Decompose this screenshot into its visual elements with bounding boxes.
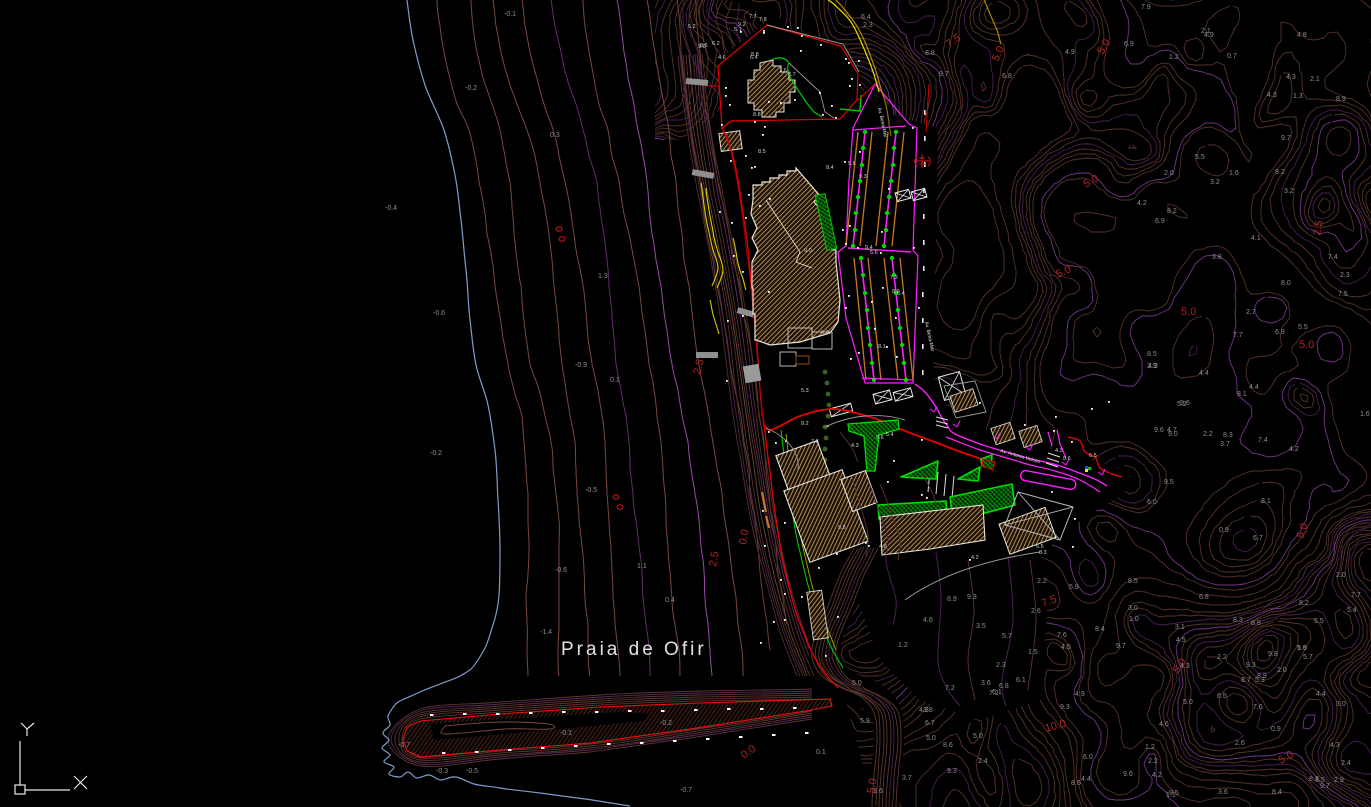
svg-text:0.1: 0.1 xyxy=(610,377,620,384)
svg-text:6.4: 6.4 xyxy=(861,14,871,21)
svg-text:5.4: 5.4 xyxy=(1347,607,1357,614)
svg-text:8.2: 8.2 xyxy=(1299,600,1309,607)
svg-text:9.3: 9.3 xyxy=(967,594,977,601)
svg-text:9.2: 9.2 xyxy=(801,421,809,427)
svg-text:-0.4: -0.4 xyxy=(385,205,397,212)
svg-text:-0.5: -0.5 xyxy=(466,768,478,775)
svg-text:3.1: 3.1 xyxy=(1175,624,1185,631)
svg-text:9.0: 9.0 xyxy=(804,248,812,254)
svg-text:9.2: 9.2 xyxy=(1275,169,1285,176)
svg-text:4.3: 4.3 xyxy=(1330,742,1340,749)
svg-text:7.7: 7.7 xyxy=(749,14,757,20)
svg-text:2.0: 2.0 xyxy=(1277,667,1287,674)
svg-text:7.3: 7.3 xyxy=(890,275,898,281)
svg-text:3.8: 3.8 xyxy=(1212,254,1222,261)
svg-text:6.4: 6.4 xyxy=(897,291,905,297)
svg-text:8.1: 8.1 xyxy=(1237,391,1247,398)
svg-text:1.5: 1.5 xyxy=(1028,649,1038,656)
svg-text:-0.2: -0.2 xyxy=(465,85,477,92)
svg-text:-0.6: -0.6 xyxy=(433,310,445,317)
svg-text:5.7: 5.7 xyxy=(1303,654,1313,661)
svg-text:9.5: 9.5 xyxy=(838,525,846,531)
svg-text:2.3: 2.3 xyxy=(996,662,1006,669)
svg-text:8.4: 8.4 xyxy=(826,165,834,171)
svg-text:4.4: 4.4 xyxy=(1081,776,1091,783)
svg-text:7.6: 7.6 xyxy=(779,68,787,74)
svg-text:6.8: 6.8 xyxy=(1199,594,1209,601)
svg-text:5.0: 5.0 xyxy=(1183,699,1193,706)
svg-text:8.5: 8.5 xyxy=(758,149,766,155)
svg-text:6.5: 6.5 xyxy=(1089,453,1097,459)
svg-text:5.2: 5.2 xyxy=(688,24,696,30)
svg-text:5.9: 5.9 xyxy=(860,718,870,725)
svg-text:3.7: 3.7 xyxy=(902,775,912,782)
svg-text:2.2: 2.2 xyxy=(1037,578,1047,585)
svg-text:1.3: 1.3 xyxy=(1293,93,1303,100)
svg-text:9.6: 9.6 xyxy=(1123,771,1133,778)
svg-text:0.4: 0.4 xyxy=(665,597,675,604)
svg-text:3.8: 3.8 xyxy=(923,707,933,714)
svg-text:2.7: 2.7 xyxy=(1246,309,1256,316)
svg-text:7.4: 7.4 xyxy=(1328,254,1338,261)
svg-text:5.5: 5.5 xyxy=(1298,324,1308,331)
svg-text:8.4: 8.4 xyxy=(1095,626,1105,633)
svg-text:5.0: 5.0 xyxy=(1181,306,1196,318)
svg-text:1.2: 1.2 xyxy=(898,642,908,649)
svg-text:2.4: 2.4 xyxy=(978,758,988,765)
svg-text:4.3: 4.3 xyxy=(1267,92,1277,99)
svg-text:7.6: 7.6 xyxy=(1253,704,1263,711)
svg-text:9.7: 9.7 xyxy=(1281,135,1291,142)
svg-text:4.6: 4.6 xyxy=(923,617,933,624)
svg-text:0.9: 0.9 xyxy=(1271,726,1281,733)
svg-text:4.3: 4.3 xyxy=(851,443,859,449)
svg-text:8.7: 8.7 xyxy=(788,72,796,78)
svg-text:4.5: 4.5 xyxy=(1176,637,1186,644)
svg-text:0.1: 0.1 xyxy=(816,749,826,756)
svg-text:4.3: 4.3 xyxy=(1286,74,1296,81)
svg-text:5.0: 5.0 xyxy=(852,680,862,687)
svg-text:7.2: 7.2 xyxy=(945,685,955,692)
svg-text:3.7: 3.7 xyxy=(1220,441,1230,448)
svg-text:9.7: 9.7 xyxy=(1116,643,1126,650)
svg-text:9.8: 9.8 xyxy=(1268,651,1278,658)
svg-text:-0.1: -0.1 xyxy=(560,730,572,737)
svg-text:4.4: 4.4 xyxy=(1199,370,1209,377)
svg-text:2.9: 2.9 xyxy=(1334,777,1344,784)
svg-text:4.5: 4.5 xyxy=(1061,644,1071,651)
svg-text:3.2: 3.2 xyxy=(1210,179,1220,186)
svg-text:-0.3: -0.3 xyxy=(436,768,448,775)
svg-text:3.5: 3.5 xyxy=(976,623,986,630)
svg-text:8.6: 8.6 xyxy=(1063,456,1071,462)
svg-text:5.5: 5.5 xyxy=(1195,154,1205,161)
svg-text:-0.7: -0.7 xyxy=(398,742,410,749)
svg-text:2.0: 2.0 xyxy=(1336,572,1346,579)
svg-text:8.2: 8.2 xyxy=(1167,208,1177,215)
svg-text:6.9: 6.9 xyxy=(1275,329,1285,336)
svg-text:2.2: 2.2 xyxy=(1148,758,1158,765)
svg-text:5.4: 5.4 xyxy=(886,432,894,438)
svg-text:9.3: 9.3 xyxy=(1060,704,1070,711)
svg-text:2.4: 2.4 xyxy=(1341,760,1351,767)
svg-text:8.9: 8.9 xyxy=(947,596,957,603)
svg-text:9.0: 9.0 xyxy=(1168,431,1178,438)
svg-text:-0.2: -0.2 xyxy=(660,720,672,727)
svg-text:9.6: 9.6 xyxy=(1180,400,1190,407)
svg-text:3.2: 3.2 xyxy=(1284,188,1294,195)
svg-text:0.9: 0.9 xyxy=(1219,527,1229,534)
svg-text:4.3: 4.3 xyxy=(1055,448,1063,454)
svg-text:1.1: 1.1 xyxy=(637,563,647,570)
svg-text:5.0: 5.0 xyxy=(973,733,983,740)
svg-text:1.6: 1.6 xyxy=(1229,170,1239,177)
svg-text:8.6: 8.6 xyxy=(943,742,953,749)
svg-text:2.1: 2.1 xyxy=(1201,28,1211,35)
svg-text:5.6: 5.6 xyxy=(848,161,856,167)
svg-text:8.3: 8.3 xyxy=(1223,432,1233,439)
svg-text:7.7: 7.7 xyxy=(1233,332,1243,339)
svg-text:2.3: 2.3 xyxy=(1340,272,1350,279)
svg-text:7.6: 7.6 xyxy=(1057,632,1067,639)
svg-text:6.0: 6.0 xyxy=(1083,754,1093,761)
svg-text:6.8: 6.8 xyxy=(1002,73,1012,80)
svg-text:6.0: 6.0 xyxy=(1147,499,1157,506)
svg-text:8.7: 8.7 xyxy=(1309,776,1319,783)
svg-text:5.9: 5.9 xyxy=(1069,584,1079,591)
svg-text:8.8: 8.8 xyxy=(1251,620,1261,627)
svg-text:5.3: 5.3 xyxy=(1255,677,1265,684)
svg-text:2.1: 2.1 xyxy=(1310,76,1320,83)
svg-text:1.2: 1.2 xyxy=(1169,54,1179,61)
svg-text:3.6: 3.6 xyxy=(873,788,883,795)
svg-text:4.9: 4.9 xyxy=(1065,49,1075,56)
svg-text:8.3: 8.3 xyxy=(1233,617,1243,624)
svg-text:3.6: 3.6 xyxy=(1218,789,1228,796)
svg-text:4.6: 4.6 xyxy=(1159,721,1169,728)
svg-text:4.8: 4.8 xyxy=(879,544,887,550)
svg-text:-0.5: -0.5 xyxy=(585,487,597,494)
svg-text:9.5: 9.5 xyxy=(1164,479,1174,486)
svg-text:-0.2: -0.2 xyxy=(430,450,442,457)
svg-text:7.5: 7.5 xyxy=(1338,291,1348,298)
svg-text:6.7: 6.7 xyxy=(925,720,935,727)
svg-text:9.4: 9.4 xyxy=(865,245,873,251)
svg-text:9.6: 9.6 xyxy=(1154,427,1164,434)
svg-text:5.0: 5.0 xyxy=(1299,339,1314,351)
svg-text:4.3: 4.3 xyxy=(1148,363,1158,370)
svg-text:4.8: 4.8 xyxy=(1297,32,1307,39)
svg-text:4.2: 4.2 xyxy=(1137,200,1147,207)
svg-text:-0.1: -0.1 xyxy=(504,11,516,18)
svg-text:2.2: 2.2 xyxy=(1217,654,1227,661)
svg-text:8.6: 8.6 xyxy=(700,43,708,49)
svg-text:-0.6: -0.6 xyxy=(555,567,567,574)
svg-text:3.0: 3.0 xyxy=(1128,605,1138,612)
svg-text:5.0: 5.0 xyxy=(926,735,936,742)
svg-text:5.3: 5.3 xyxy=(801,388,809,394)
svg-text:3.6: 3.6 xyxy=(981,680,991,687)
svg-text:9.6: 9.6 xyxy=(876,435,884,441)
svg-text:0.3: 0.3 xyxy=(550,132,560,139)
svg-text:4.9: 4.9 xyxy=(1075,691,1085,698)
svg-text:6.9: 6.9 xyxy=(1124,41,1134,48)
svg-text:4.2: 4.2 xyxy=(971,555,979,561)
svg-text:4.6: 4.6 xyxy=(718,55,726,61)
svg-text:6.9: 6.9 xyxy=(1155,218,1165,225)
svg-text:7.2: 7.2 xyxy=(989,690,999,697)
svg-text:2.3: 2.3 xyxy=(863,22,873,29)
svg-text:9.5: 9.5 xyxy=(1169,790,1179,797)
svg-text:1.6: 1.6 xyxy=(1360,411,1370,418)
svg-text:-0.9: -0.9 xyxy=(575,362,587,369)
svg-text:7.8: 7.8 xyxy=(811,439,819,445)
svg-text:8.9: 8.9 xyxy=(1336,96,1346,103)
svg-text:1.0: 1.0 xyxy=(1129,616,1139,623)
svg-text:8.8: 8.8 xyxy=(753,112,761,118)
svg-text:7.7: 7.7 xyxy=(1351,592,1361,599)
svg-text:4.3: 4.3 xyxy=(1180,663,1190,670)
svg-text:-1.4: -1.4 xyxy=(540,629,552,636)
svg-text:8.7: 8.7 xyxy=(1241,677,1251,684)
svg-text:9.3: 9.3 xyxy=(859,174,867,180)
svg-text:7.9: 7.9 xyxy=(1141,4,1151,11)
svg-text:-0.7: -0.7 xyxy=(680,787,692,794)
svg-text:4.4: 4.4 xyxy=(1249,384,1259,391)
svg-text:8.5: 8.5 xyxy=(1128,578,1138,585)
svg-text:5.5: 5.5 xyxy=(1314,618,1324,625)
svg-text:8.4: 8.4 xyxy=(1272,789,1282,796)
svg-text:7.4: 7.4 xyxy=(1258,437,1268,444)
svg-text:2.0: 2.0 xyxy=(1164,170,1174,177)
svg-text:4.2: 4.2 xyxy=(1152,772,1162,779)
svg-text:6.4: 6.4 xyxy=(750,55,758,61)
svg-text:9.7: 9.7 xyxy=(1320,783,1330,790)
svg-text:6.7: 6.7 xyxy=(1253,535,1263,542)
svg-text:8.8: 8.8 xyxy=(925,50,935,57)
svg-text:5.1: 5.1 xyxy=(734,27,742,33)
svg-text:6.5: 6.5 xyxy=(1217,693,1227,700)
svg-text:8.0: 8.0 xyxy=(1281,280,1291,287)
svg-text:2.6: 2.6 xyxy=(1235,740,1245,747)
svg-text:4.2: 4.2 xyxy=(1289,446,1299,453)
svg-text:7.8: 7.8 xyxy=(759,17,767,23)
svg-text:1.6: 1.6 xyxy=(1297,645,1307,652)
svg-text:1.2: 1.2 xyxy=(1145,744,1155,751)
svg-text:4.1: 4.1 xyxy=(1251,235,1261,242)
svg-text:0.7: 0.7 xyxy=(1227,53,1237,60)
svg-text:4.4: 4.4 xyxy=(1316,691,1326,698)
svg-text:5.7: 5.7 xyxy=(1002,633,1012,640)
svg-text:6.2: 6.2 xyxy=(712,41,720,47)
svg-text:8.6: 8.6 xyxy=(1071,780,1081,787)
svg-text:3.0: 3.0 xyxy=(1336,701,1346,708)
svg-text:6.1: 6.1 xyxy=(1016,677,1026,684)
svg-text:2.6: 2.6 xyxy=(1031,608,1041,615)
svg-text:2.2: 2.2 xyxy=(1203,431,1213,438)
svg-text:8.3: 8.3 xyxy=(1039,550,1047,556)
svg-text:1.3: 1.3 xyxy=(598,273,608,280)
svg-text:8.1: 8.1 xyxy=(1261,498,1271,505)
svg-text:8.1: 8.1 xyxy=(878,344,886,350)
svg-text:9.3: 9.3 xyxy=(1246,662,1256,669)
svg-text:9.7: 9.7 xyxy=(939,71,949,78)
svg-text:6.3: 6.3 xyxy=(821,330,829,336)
svg-text:9.3: 9.3 xyxy=(947,768,957,775)
svg-text:Praia de Ofir: Praia de Ofir xyxy=(561,639,707,660)
svg-text:8.5: 8.5 xyxy=(1147,351,1157,358)
